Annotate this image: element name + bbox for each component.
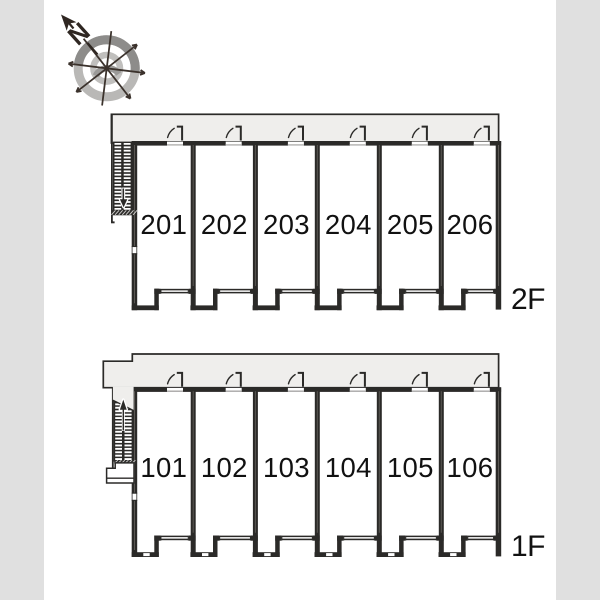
svg-text:106: 106 — [447, 452, 494, 483]
svg-text:205: 205 — [387, 209, 434, 240]
svg-text:101: 101 — [140, 452, 187, 483]
svg-text:206: 206 — [447, 209, 494, 240]
svg-text:104: 104 — [325, 452, 372, 483]
svg-text:202: 202 — [201, 209, 248, 240]
svg-text:204: 204 — [325, 209, 372, 240]
svg-text:203: 203 — [263, 209, 310, 240]
svg-text:102: 102 — [201, 452, 248, 483]
svg-text:105: 105 — [387, 452, 434, 483]
svg-text:201: 201 — [140, 209, 187, 240]
svg-text:2F: 2F — [511, 283, 545, 316]
svg-text:103: 103 — [263, 452, 310, 483]
svg-text:1F: 1F — [511, 530, 545, 563]
